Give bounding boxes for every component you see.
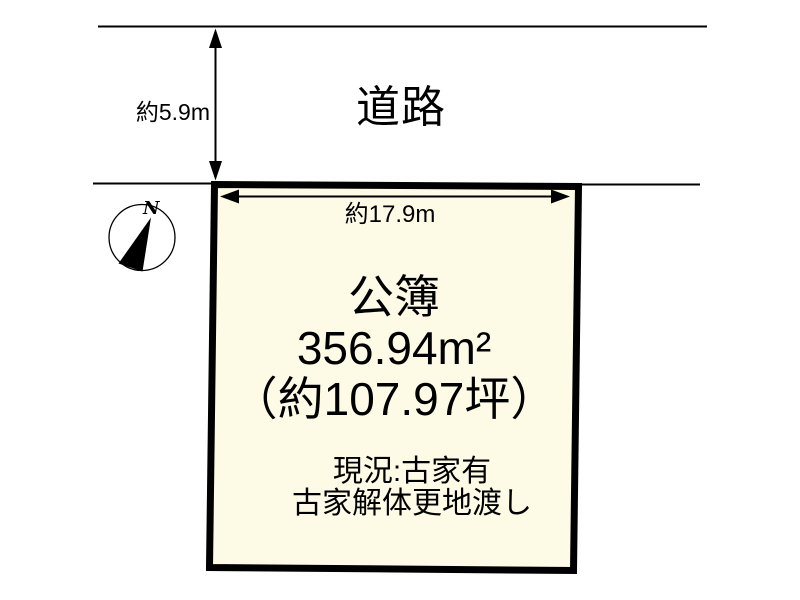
plot-area-info: 公簿 356.94m² （約107.97坪） bbox=[211, 272, 577, 425]
area-sqm-value: 356.94m² bbox=[211, 323, 577, 374]
road-label: 道路 bbox=[356, 85, 446, 131]
status-line-1: 現況:古家有 bbox=[229, 456, 595, 488]
status-line-2: 古家解体更地渡し bbox=[229, 488, 595, 520]
arrowhead-up-icon bbox=[209, 29, 222, 49]
frontage-label: 約17.9m bbox=[290, 202, 490, 228]
area-tsubo-value: （約107.97坪） bbox=[211, 374, 577, 425]
register-label: 公簿 bbox=[211, 272, 577, 323]
plot-status-info: 現況:古家有 古家解体更地渡し bbox=[229, 456, 595, 520]
land-plot-diagram: 約5.9m 道路 約17.9m 公簿 356.94m² （約107.97坪） 現… bbox=[0, 0, 800, 600]
road-width-arrow bbox=[209, 29, 222, 181]
road-width-label: 約5.9m bbox=[118, 99, 210, 125]
arrowhead-down-icon bbox=[209, 161, 222, 181]
compass-north-label: N bbox=[143, 199, 159, 219]
